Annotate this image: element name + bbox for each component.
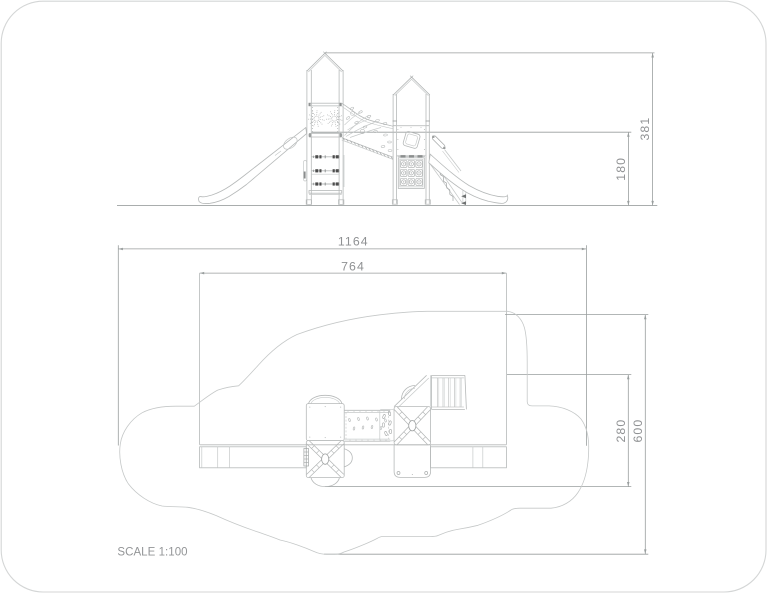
svg-text:1164: 1164 — [338, 235, 369, 249]
svg-text:381: 381 — [638, 117, 652, 141]
svg-text:SCALE 1:100: SCALE 1:100 — [117, 546, 187, 558]
svg-text:280: 280 — [614, 419, 628, 443]
svg-text:600: 600 — [631, 419, 645, 443]
svg-text:180: 180 — [614, 157, 628, 181]
svg-text:764: 764 — [341, 259, 365, 273]
